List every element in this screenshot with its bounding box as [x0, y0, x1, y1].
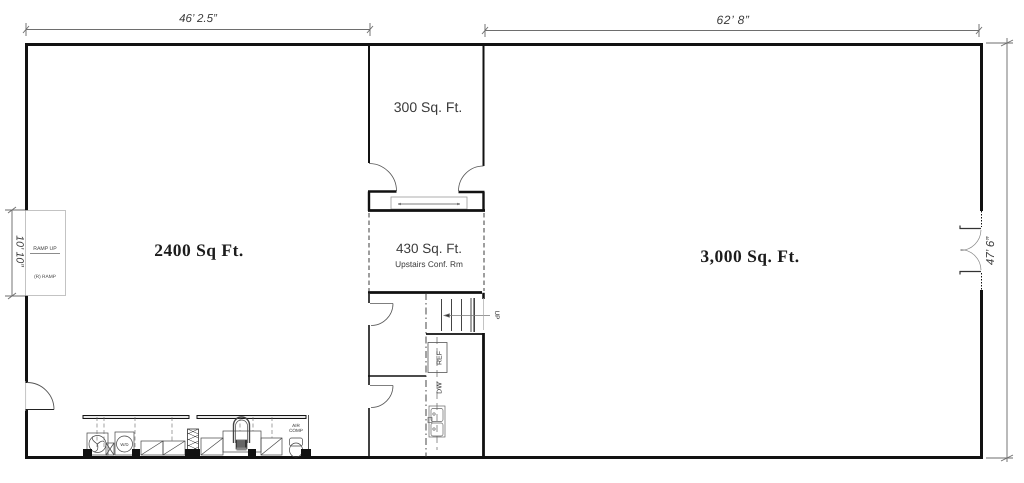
svg-text:W/D: W/D [120, 442, 128, 447]
svg-text:REF: REF [437, 351, 444, 365]
svg-text:62’ 8”: 62’ 8” [717, 13, 750, 27]
svg-text:(R) RAMP: (R) RAMP [34, 274, 56, 280]
svg-text:47’ 6”: 47’ 6” [985, 236, 997, 265]
svg-text:UP: UP [493, 310, 500, 319]
svg-text:10’ 10”: 10’ 10” [14, 235, 26, 267]
svg-text:3,000 Sq. Ft.: 3,000 Sq. Ft. [700, 246, 799, 266]
svg-text:Upstairs Conf. Rm: Upstairs Conf. Rm [395, 259, 463, 269]
svg-text:2400 Sq Ft.: 2400 Sq Ft. [154, 240, 244, 260]
svg-text:430 Sq. Ft.: 430 Sq. Ft. [396, 241, 462, 256]
svg-text:COMP: COMP [289, 428, 303, 433]
svg-text:46’ 2.5”: 46’ 2.5” [179, 13, 218, 25]
svg-text:RAMP UP: RAMP UP [33, 246, 57, 252]
svg-text:300 Sq. Ft.: 300 Sq. Ft. [394, 99, 462, 115]
svg-text:DW: DW [437, 382, 444, 394]
